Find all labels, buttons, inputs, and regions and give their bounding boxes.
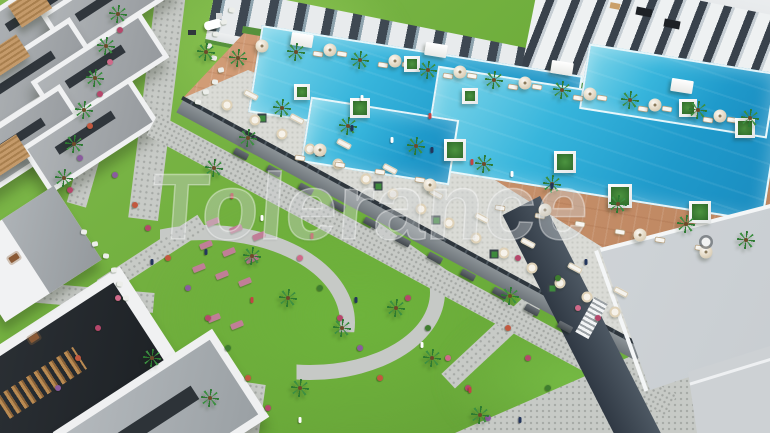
flower-bush [405,295,411,301]
flower-bush [317,285,323,291]
flower-bush [55,385,61,391]
flower-bush [115,295,121,301]
stepping-stone [212,79,218,85]
palm-tree [407,137,425,155]
palm-tree [621,91,639,109]
flower-bush [377,375,383,381]
planter-box [462,88,478,104]
palm-tree [273,99,291,117]
person-figure [519,417,522,423]
planter-box [350,98,370,118]
parasol [324,44,337,57]
planter-box [294,84,310,100]
flower-bush [67,187,73,193]
palm-tree [737,231,755,249]
flower-bush [425,325,431,331]
flower-bush [357,345,363,351]
palm-tree [423,349,441,367]
flower-bush [117,27,123,33]
flower-bush [95,325,101,331]
palm-tree [55,169,73,187]
flower-bush [575,305,581,311]
palm-tree [86,69,104,87]
parasol [714,110,727,123]
person-figure [469,387,472,393]
flower-bush [87,123,93,129]
planter-box [404,56,420,72]
round-daybed [610,307,621,318]
flower-bush [205,315,211,321]
person-figure [429,113,432,119]
flower-bush [545,385,551,391]
stepping-stone [117,281,124,287]
person-figure [299,417,302,423]
person-figure [251,297,254,303]
parasol [389,55,402,68]
palm-tree [109,5,127,23]
parasol [584,88,597,101]
person-figure [351,125,354,131]
palm-tree [419,61,437,79]
round-daybed [222,100,233,111]
palm-tree [471,406,489,424]
person-figure [151,259,154,265]
stepping-stone [229,7,236,13]
palm-tree [333,319,351,337]
flower-bush [265,405,271,411]
flower-bush [245,375,251,381]
palm-tree [97,37,115,55]
flower-bush [595,315,601,321]
parasol [454,66,467,79]
palm-tree [485,71,503,89]
palm-tree [741,109,759,127]
palm-tree [65,135,83,153]
parasol [700,246,713,259]
palm-tree [677,215,695,233]
parasol [519,77,532,90]
palm-tree [339,117,357,135]
person-figure [361,95,364,101]
palm-tree [201,389,219,407]
playground-tower [216,13,222,19]
stepping-stone [81,229,88,235]
palm-tree [287,43,305,61]
palm-tree [291,379,309,397]
person-figure [355,297,358,303]
round-daybed [250,115,261,126]
stepping-stone [123,295,129,301]
flower-bush [505,325,511,331]
round-daybed [527,263,538,274]
palm-tree [553,81,571,99]
palm-tree [501,287,519,305]
stepping-stone [195,99,202,105]
flower-bush [97,91,103,97]
palm-tree [229,49,247,67]
person-figure [585,259,588,265]
palm-tree [387,299,405,317]
stepping-stone [213,31,220,37]
flower-bush [225,345,231,351]
palm-tree [689,101,707,119]
person-figure [391,137,394,143]
palm-tree [239,129,257,147]
flower-bush [445,355,451,361]
resort-aerial-render: Tolerance [0,0,770,433]
person-figure [431,147,434,153]
round-daybed [582,292,593,303]
parasol [256,40,269,53]
watermark-text: Tolerance [97,158,644,257]
flower-bush [185,285,191,291]
palm-tree [143,349,161,367]
person-figure [421,342,424,348]
palm-tree [351,51,369,69]
flower-bush [555,275,561,281]
flower-bush [75,355,81,361]
parasol [649,99,662,112]
flower-bush [525,355,531,361]
flower-bush [77,155,83,161]
round-daybed [277,129,288,140]
palm-tree [197,43,215,61]
playground-set [188,30,196,35]
palm-tree [75,101,93,119]
rooftop-table [702,238,711,247]
palm-tree [279,289,297,307]
flower-bush [107,59,113,65]
